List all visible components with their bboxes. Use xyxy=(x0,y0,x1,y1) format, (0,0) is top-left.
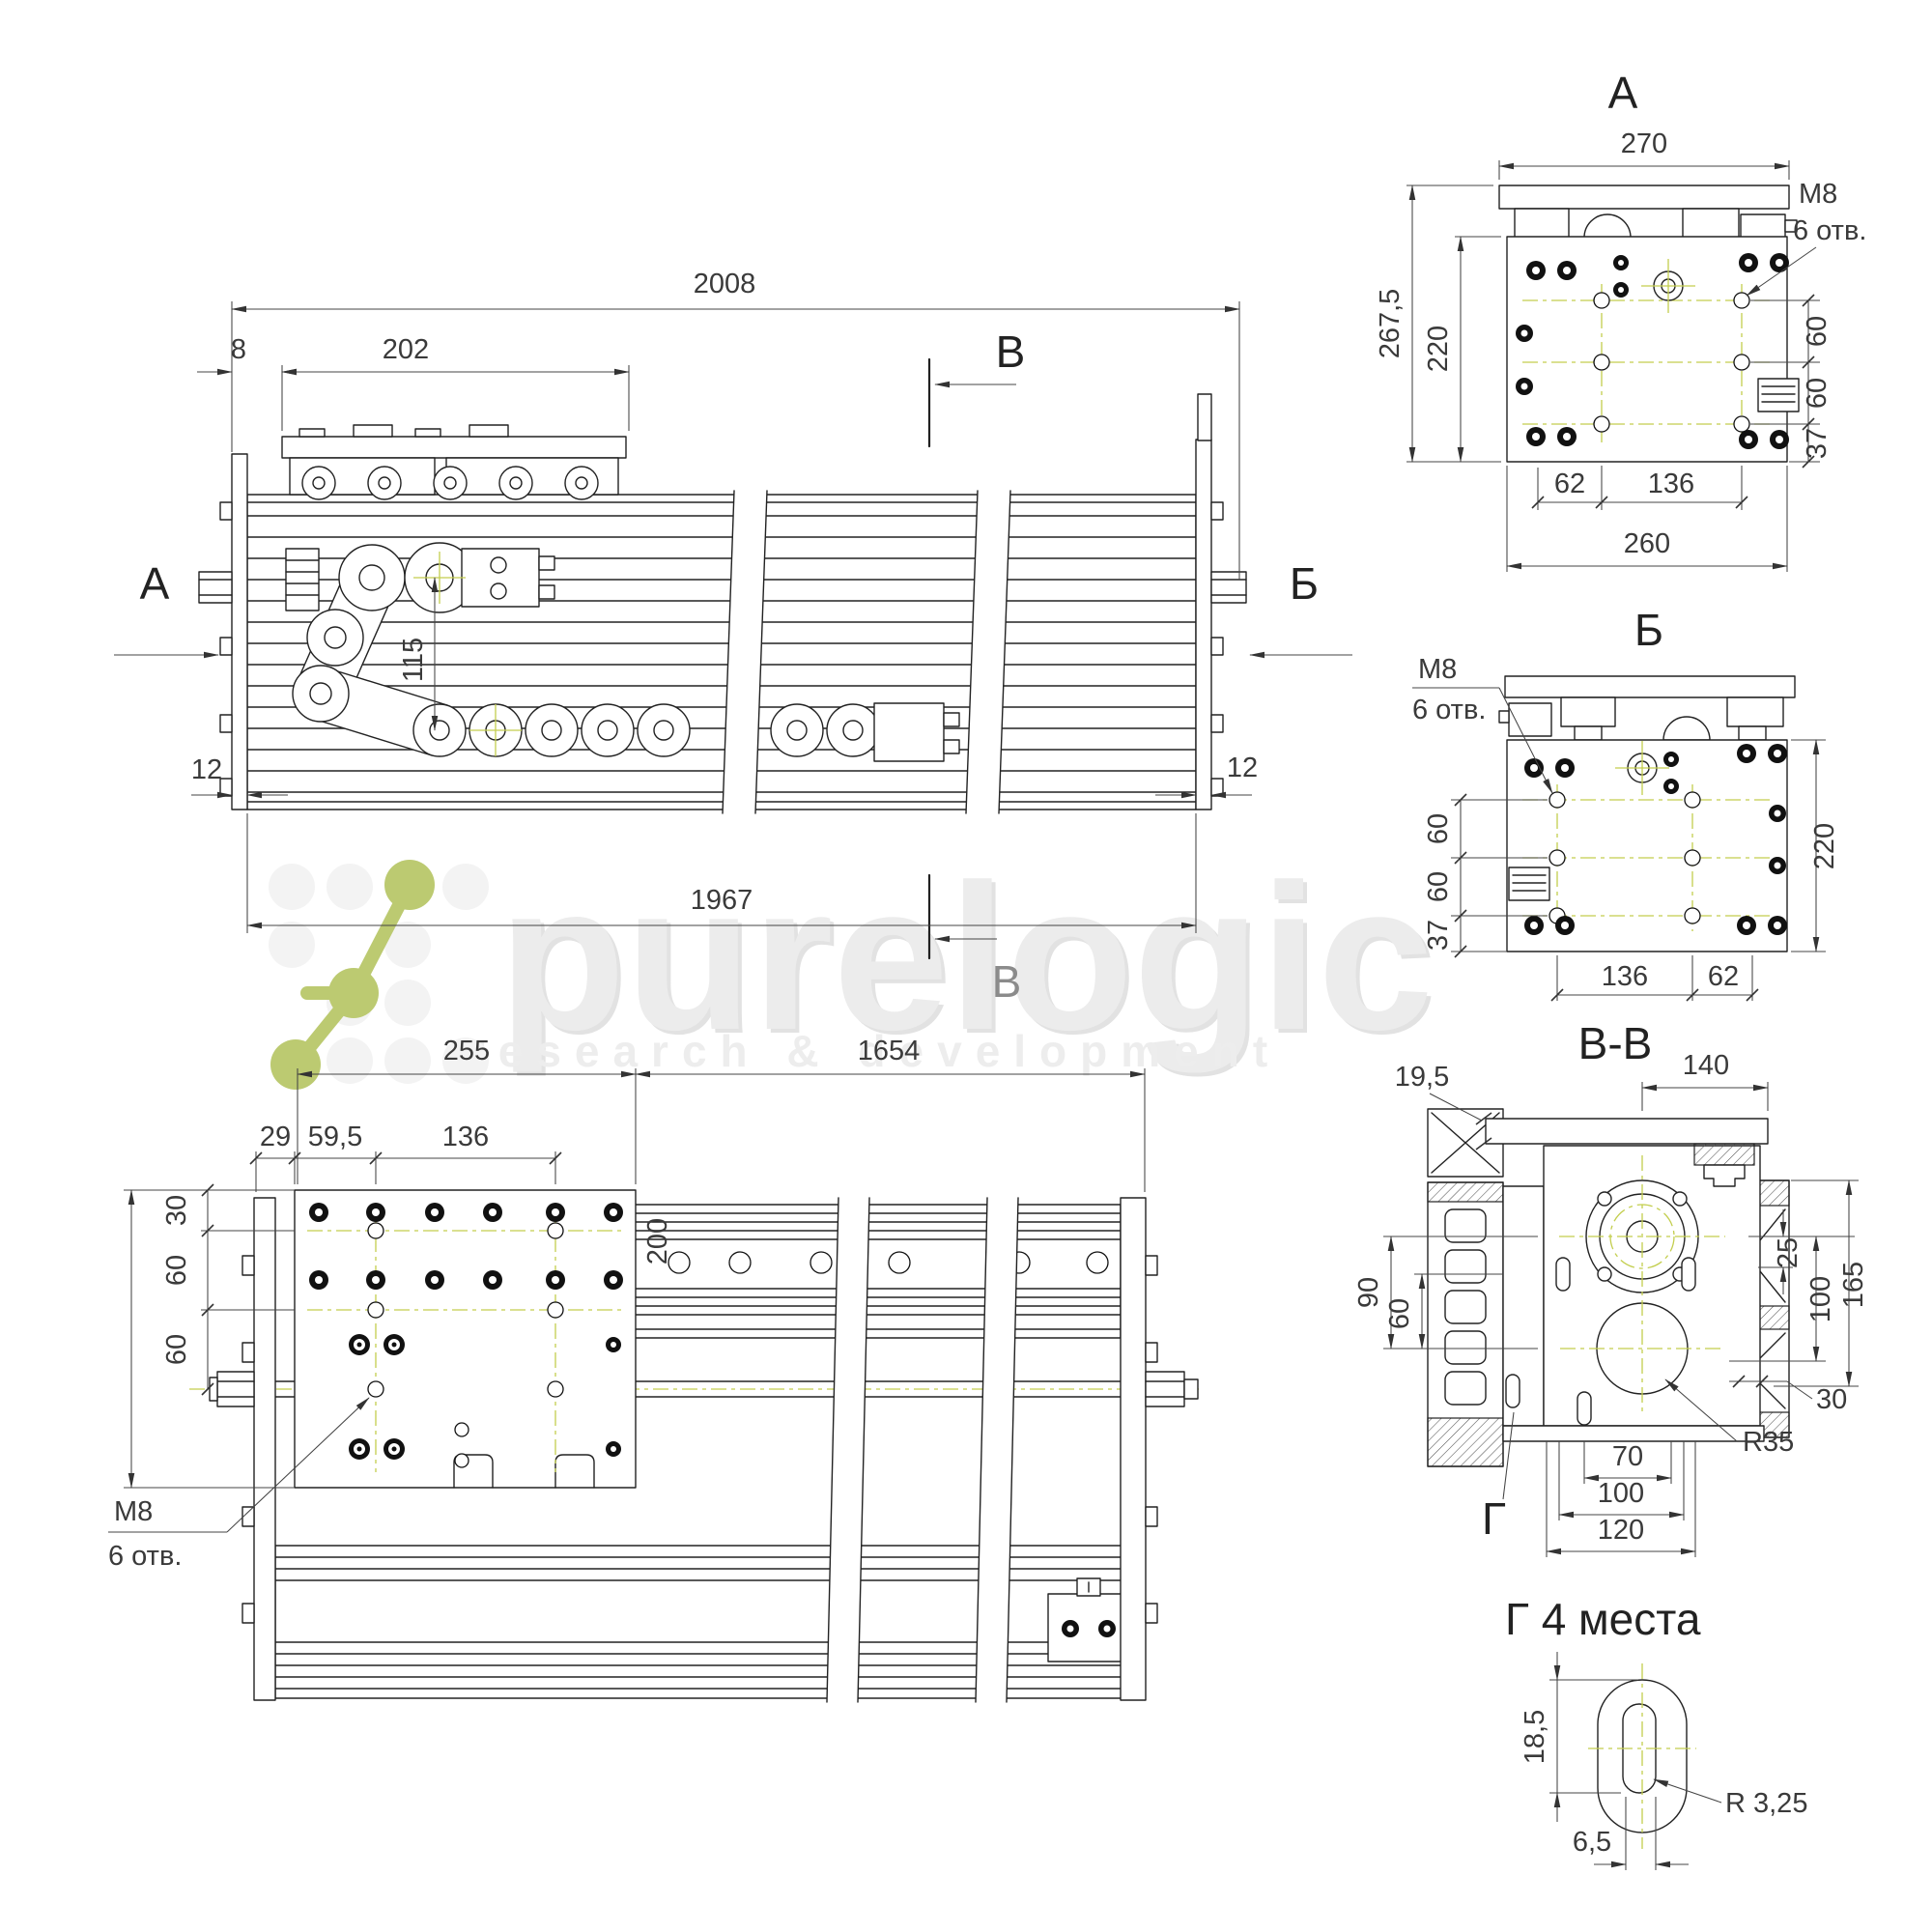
vv-top-plate xyxy=(1486,1119,1768,1144)
view-b-carriage xyxy=(1499,676,1795,740)
dim-136-top-label: 136 xyxy=(442,1122,489,1152)
dim-136-label: 136 xyxy=(1648,469,1694,499)
dim-220-b: 220 xyxy=(1791,740,1840,952)
dim-267-5-label: 267,5 xyxy=(1375,289,1406,359)
vv-chain-links xyxy=(1445,1209,1486,1405)
dim-30-vv-label: 30 xyxy=(1816,1384,1847,1415)
view-b: Б xyxy=(1412,605,1840,1001)
vv-left-profile xyxy=(1428,1109,1503,1466)
cad-drawing: purelogic purelogic research & developme… xyxy=(0,0,1932,1932)
dim-70-label: 70 xyxy=(1612,1441,1643,1472)
top-view: 255 1654 29 59,5 136 30 60 60 200 М8 6 о… xyxy=(108,1036,1200,1702)
detail-g: Г 4 места 18,5 6,5 R 3,25 xyxy=(1505,1594,1807,1870)
view-b-title: Б xyxy=(1634,605,1663,655)
dim-12-right-label: 12 xyxy=(1227,753,1258,783)
dim-59-5-label: 59,5 xyxy=(308,1122,362,1152)
dim-90-label: 90 xyxy=(1353,1277,1384,1308)
view-a-bottom-dims: 62 136 260 xyxy=(1507,466,1787,572)
logo-dot-3 xyxy=(270,1039,321,1090)
front-carriage xyxy=(282,425,626,499)
dim-12-left-label: 12 xyxy=(191,754,222,785)
dim-202-label: 202 xyxy=(383,334,429,365)
dim-8-202: 8 202 xyxy=(197,334,629,431)
logo-dot-1 xyxy=(384,860,435,910)
view-b-dim-62: 62 xyxy=(1708,961,1739,992)
dim-120-label: 120 xyxy=(1598,1515,1644,1546)
top-rail-band-1 xyxy=(636,1205,1121,1338)
dim-60-2-label: 60 xyxy=(1802,378,1833,409)
top-plate xyxy=(295,1190,636,1488)
view-b-connector xyxy=(1509,867,1549,900)
dim-100-right-label: 100 xyxy=(1805,1276,1836,1322)
dim-60-vv-label: 60 xyxy=(1384,1298,1415,1329)
dim-62-label: 62 xyxy=(1554,469,1585,499)
dim-267-5: 267,5 xyxy=(1375,185,1501,462)
view-a-holes-label: 6 отв. xyxy=(1793,215,1866,246)
view-a-title: А xyxy=(1608,68,1638,118)
view-b-dim-220: 220 xyxy=(1809,823,1840,869)
view-b-thread-label: М8 xyxy=(1418,654,1457,685)
dim-220-a-label: 220 xyxy=(1423,326,1454,372)
top-break-lines xyxy=(827,1198,1018,1702)
section-vv-title: В-В xyxy=(1578,1018,1653,1068)
view-b-dim-37: 37 xyxy=(1423,920,1454,951)
view-b-dim-60-2: 60 xyxy=(1423,871,1454,902)
top-holes-label: 6 отв. xyxy=(108,1541,182,1572)
dim-165-label: 165 xyxy=(1838,1262,1869,1308)
front-body-rails xyxy=(247,495,1196,810)
view-b-bottom-dims: 136 62 xyxy=(1551,955,1758,1001)
section-vv: В-В xyxy=(1353,1018,1869,1557)
view-a-connector xyxy=(1758,379,1799,412)
drawing-page: purelogic purelogic research & developme… xyxy=(0,0,1932,1932)
dim-255-label: 255 xyxy=(443,1036,490,1066)
vv-bottom-dims: 70 100 120 xyxy=(1547,1441,1695,1557)
dim-29-59-136: 29 59,5 136 xyxy=(250,1122,561,1192)
r3-25-label: R 3,25 xyxy=(1725,1788,1807,1819)
detail-g-title: Г 4 места xyxy=(1505,1594,1701,1644)
dim-37-label: 37 xyxy=(1802,428,1833,459)
top-bracket xyxy=(1048,1578,1125,1662)
dim-2008-label: 2008 xyxy=(694,269,756,299)
section-v-top-label: В xyxy=(996,327,1026,377)
dim-19-5-label: 19,5 xyxy=(1395,1062,1449,1093)
view-b-dim-60-1: 60 xyxy=(1423,813,1454,844)
label-a: А xyxy=(140,558,170,609)
dim-8-label: 8 xyxy=(231,334,246,365)
label-b: Б xyxy=(1290,558,1319,609)
top-dim-60-2: 60 xyxy=(161,1334,192,1365)
logo-dot-2 xyxy=(328,968,379,1018)
view-b-holes-label: 6 отв. xyxy=(1412,695,1486,725)
dim-140: 140 xyxy=(1642,1050,1768,1111)
dim-18-5-label: 18,5 xyxy=(1520,1710,1550,1764)
dim-140-label: 140 xyxy=(1683,1050,1729,1081)
view-a: А xyxy=(1375,68,1866,572)
view-a-thread-label: М8 xyxy=(1799,179,1837,210)
dim-100-bottom-label: 100 xyxy=(1598,1478,1644,1509)
dim-1967-label: 1967 xyxy=(691,885,753,916)
g-label: Г xyxy=(1482,1493,1506,1544)
top-thread-label: М8 xyxy=(114,1496,153,1527)
dim-25-label: 25 xyxy=(1773,1237,1804,1268)
dim-60-1-label: 60 xyxy=(1802,316,1833,347)
view-b-dim-136: 136 xyxy=(1602,961,1648,992)
dim-29-label: 29 xyxy=(260,1122,291,1152)
dim-6-5-label: 6,5 xyxy=(1573,1827,1611,1858)
dim-200-label: 200 xyxy=(642,1218,673,1264)
dim-270-label: 270 xyxy=(1621,128,1667,159)
r35-label: R35 xyxy=(1743,1427,1794,1458)
section-v-bottom-label: В xyxy=(992,956,1022,1007)
dim-220-a: 220 xyxy=(1423,237,1501,462)
dim-30-label: 30 xyxy=(161,1195,192,1226)
dim-1654-label: 1654 xyxy=(858,1036,921,1066)
dim-115-label: 115 xyxy=(398,638,429,682)
view-arrow-b: Б xyxy=(1250,558,1352,655)
top-dim-60-1: 60 xyxy=(161,1255,192,1286)
section-v-top: В xyxy=(929,327,1025,446)
dim-260-label: 260 xyxy=(1624,528,1670,559)
dim-270: 270 xyxy=(1499,128,1789,180)
